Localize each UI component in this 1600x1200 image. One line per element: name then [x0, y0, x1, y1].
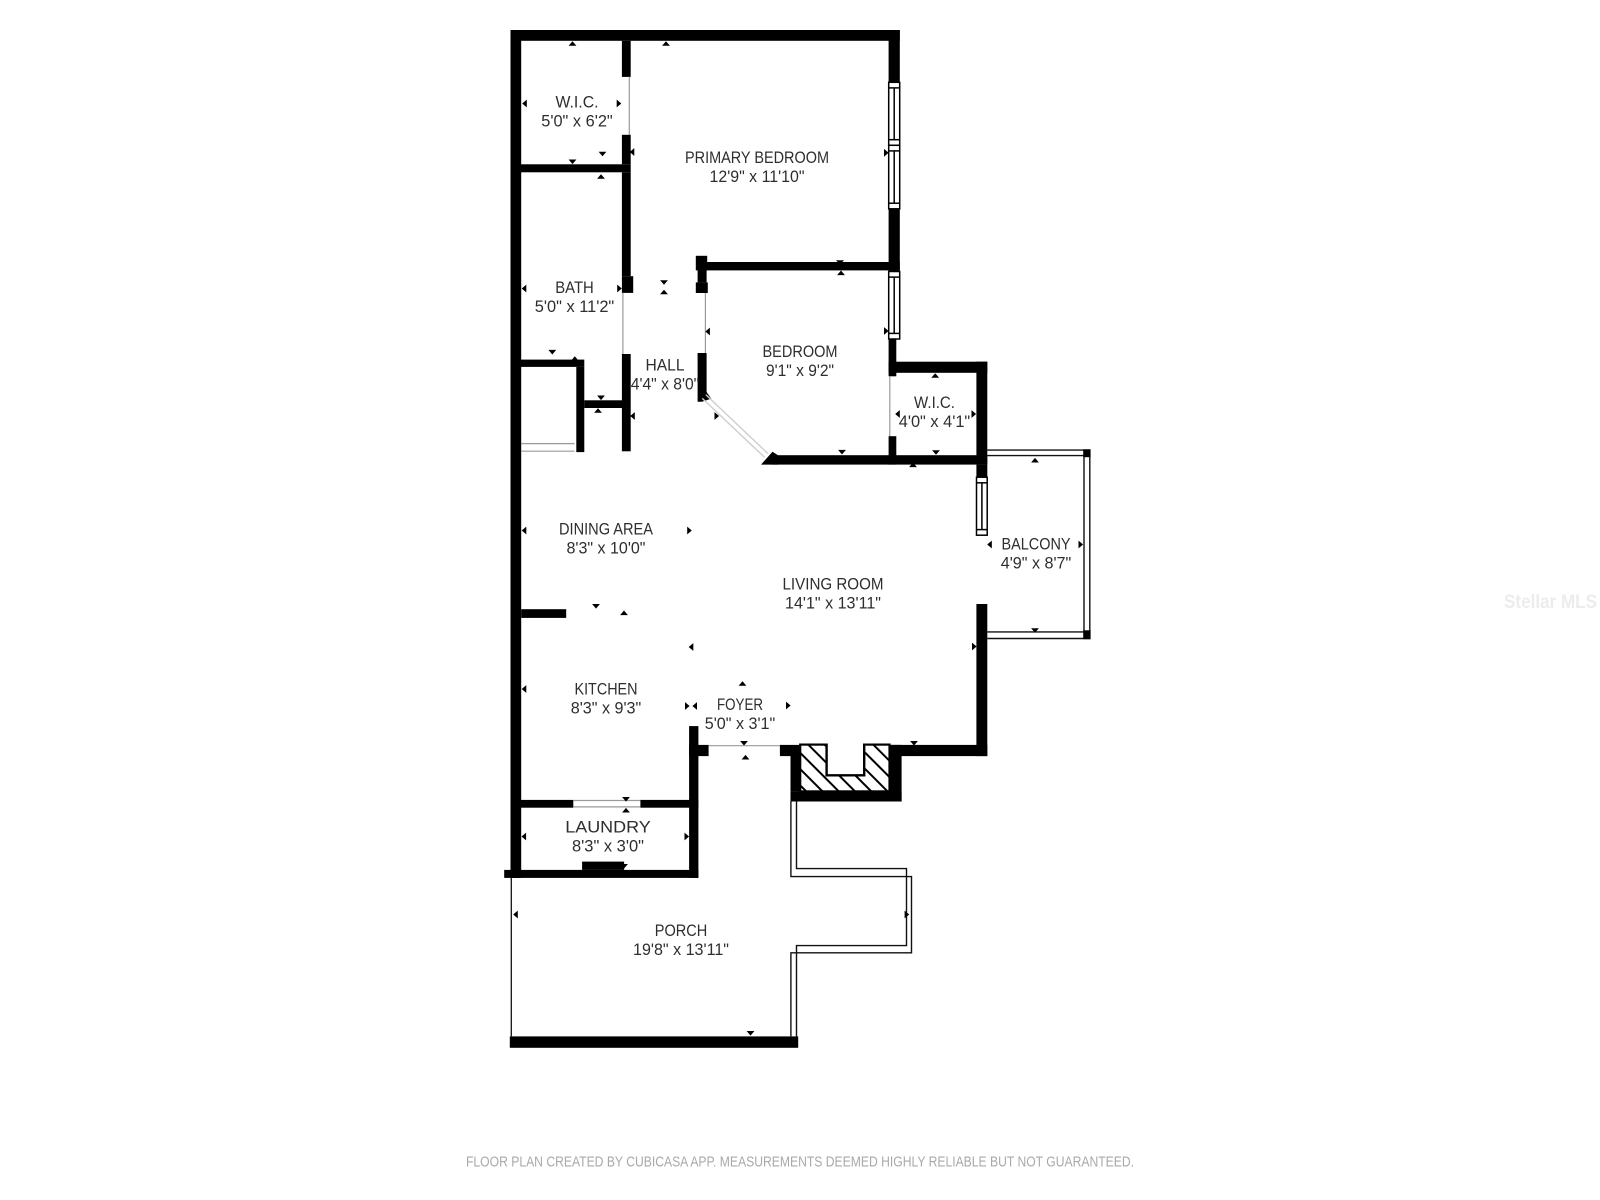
svg-text:12'9" x 11'10": 12'9" x 11'10" [710, 168, 805, 186]
svg-text:DINING AREA: DINING AREA [559, 521, 653, 539]
svg-text:FOYER: FOYER [717, 696, 763, 714]
svg-text:8'3" x 3'0": 8'3" x 3'0" [572, 838, 644, 856]
svg-text:HALL: HALL [646, 357, 685, 375]
svg-text:PORCH: PORCH [655, 922, 708, 940]
svg-text:FLOOR PLAN CREATED BY CUBICASA: FLOOR PLAN CREATED BY CUBICASA APP. MEAS… [466, 1154, 1134, 1171]
svg-text:W.I.C.: W.I.C. [914, 394, 955, 412]
svg-text:19'8" x 13'11": 19'8" x 13'11" [633, 941, 729, 959]
svg-text:4'0" x 4'1": 4'0" x 4'1" [899, 413, 971, 431]
svg-text:5'0" x 11'2": 5'0" x 11'2" [535, 298, 615, 316]
svg-text:4'9" x 8'7": 4'9" x 8'7" [1001, 555, 1072, 573]
svg-text:BEDROOM: BEDROOM [763, 343, 838, 361]
svg-text:Stellar MLS: Stellar MLS [1504, 591, 1597, 613]
svg-text:W.I.C.: W.I.C. [556, 94, 599, 112]
svg-text:5'0" x 6'2": 5'0" x 6'2" [541, 113, 613, 131]
svg-text:LIVING ROOM: LIVING ROOM [783, 576, 884, 594]
svg-text:KITCHEN: KITCHEN [575, 681, 638, 699]
svg-text:8'3" x 9'3": 8'3" x 9'3" [571, 700, 642, 718]
svg-text:BALCONY: BALCONY [1002, 536, 1071, 554]
svg-text:BATH: BATH [555, 279, 594, 297]
svg-text:5'0" x 3'1": 5'0" x 3'1" [705, 715, 776, 733]
svg-text:LAUNDRY: LAUNDRY [565, 819, 651, 837]
svg-text:4'4" x 8'0": 4'4" x 8'0" [631, 376, 700, 394]
svg-text:PRIMARY BEDROOM: PRIMARY BEDROOM [685, 149, 829, 167]
svg-text:9'1" x 9'2": 9'1" x 9'2" [766, 362, 834, 380]
svg-text:14'1" x 13'11": 14'1" x 13'11" [785, 595, 881, 613]
svg-text:8'3" x 10'0": 8'3" x 10'0" [567, 540, 646, 558]
